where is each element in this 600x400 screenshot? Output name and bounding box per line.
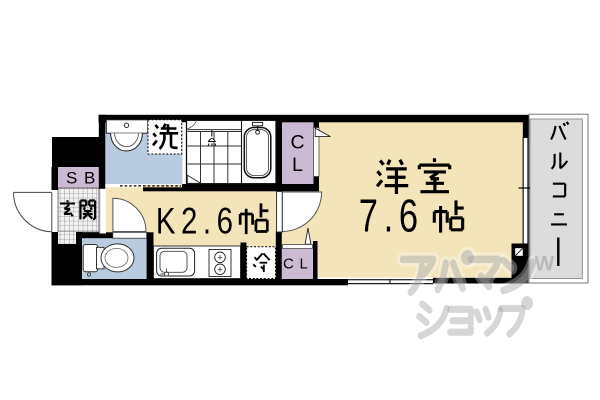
svg-text:7.6: 7.6 bbox=[359, 189, 424, 241]
svg-text:C: C bbox=[291, 132, 305, 154]
svg-text:SB: SB bbox=[66, 169, 102, 188]
svg-text:K2.6: K2.6 bbox=[156, 202, 239, 243]
svg-text:W: W bbox=[535, 253, 555, 276]
svg-text:L: L bbox=[300, 256, 308, 273]
svg-text:L: L bbox=[292, 154, 303, 176]
svg-text:C: C bbox=[283, 256, 294, 273]
